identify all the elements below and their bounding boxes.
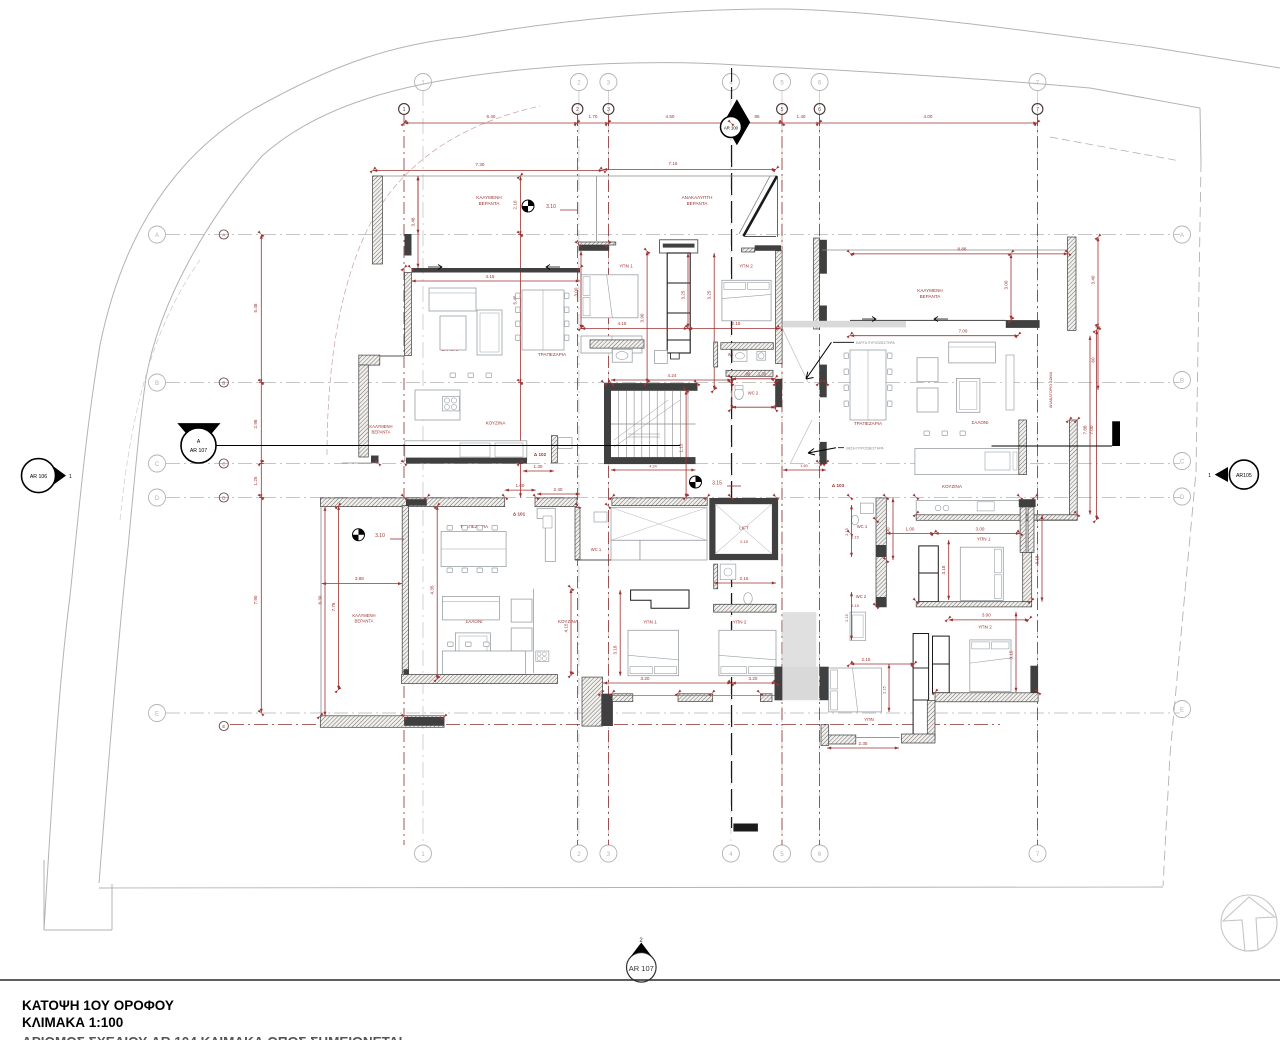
svg-text:ΘΕΣΗ ΠΥΡΟΣΒΕΣΤΗΡΑ: ΘΕΣΗ ΠΥΡΟΣΒΕΣΤΗΡΑ	[846, 446, 884, 450]
svg-text:WC 2: WC 2	[856, 594, 867, 599]
svg-text:ΚΟΥΖΙΝΑ: ΚΟΥΖΙΝΑ	[942, 484, 963, 489]
svg-text:3.15: 3.15	[1009, 650, 1014, 659]
svg-text:2: 2	[576, 107, 579, 113]
svg-text:3.10: 3.10	[546, 204, 556, 210]
svg-text:A: A	[155, 233, 159, 239]
svg-text:2.15: 2.15	[883, 686, 887, 693]
svg-text:2.15: 2.15	[845, 614, 849, 621]
svg-text:8.30: 8.30	[318, 595, 323, 604]
svg-text:4.50: 4.50	[666, 114, 675, 119]
svg-text:ΚΑΛΥΜΕΝΗ: ΚΑΛΥΜΕΝΗ	[476, 195, 501, 200]
svg-text:7.90: 7.90	[253, 595, 258, 604]
svg-text:3.00: 3.00	[976, 526, 985, 531]
svg-text:4.35: 4.35	[430, 585, 435, 594]
svg-text:2.15: 2.15	[732, 321, 741, 326]
svg-text:90: 90	[886, 527, 891, 533]
svg-text:ΥΠΝ 1: ΥΠΝ 1	[643, 620, 657, 625]
svg-text:2.15: 2.15	[862, 657, 871, 662]
svg-text:ΚΑΤΟΨΗ 1ΟΥ ΟΡΟΦΟΥ: ΚΑΤΟΨΗ 1ΟΥ ΟΡΟΦΟΥ	[22, 998, 174, 1013]
svg-text:AR 107: AR 107	[629, 964, 654, 973]
svg-text:6.40: 6.40	[487, 114, 496, 119]
svg-text:3.18: 3.18	[941, 565, 946, 574]
svg-text:4.24: 4.24	[668, 373, 677, 378]
svg-text:3.10: 3.10	[375, 533, 385, 539]
svg-text:1.00: 1.00	[516, 483, 525, 488]
svg-text:1.25: 1.25	[253, 476, 258, 485]
svg-text:2.15: 2.15	[740, 576, 749, 581]
svg-text:ΚΑΛΥΜΕΝΗ: ΚΑΛΥΜΕΝΗ	[352, 613, 375, 618]
svg-text:B: B	[155, 381, 159, 387]
svg-text:ΚΟΥΖΙΝΑ: ΚΟΥΖΙΝΑ	[486, 421, 507, 426]
svg-text:Δ 103: Δ 103	[832, 483, 845, 488]
svg-text:1.70: 1.70	[589, 114, 598, 119]
svg-text:8.88: 8.88	[958, 247, 967, 252]
svg-text:ΒΕΡΑΝΤΑ: ΒΕΡΑΝΤΑ	[479, 201, 501, 206]
svg-text:ΚΛΙΜΑΚΑ 1:100: ΚΛΙΜΑΚΑ 1:100	[22, 1015, 123, 1030]
svg-text:ΥΠΝ 2: ΥΠΝ 2	[978, 625, 992, 630]
svg-text:4.15: 4.15	[486, 274, 495, 279]
svg-text:Δ 102: Δ 102	[534, 452, 547, 457]
svg-text:2.35: 2.35	[859, 741, 868, 746]
svg-text:1: 1	[403, 107, 406, 113]
svg-text:7.00: 7.00	[959, 329, 968, 334]
svg-text:ΥΠΝ 2: ΥΠΝ 2	[739, 264, 753, 269]
svg-text:3.00: 3.00	[982, 613, 991, 618]
svg-text:AR105: AR105	[1236, 473, 1252, 479]
svg-text:3.40: 3.40	[1091, 275, 1096, 284]
svg-text:2.10: 2.10	[513, 200, 518, 209]
svg-text:4.24: 4.24	[649, 465, 656, 469]
svg-text:4.15: 4.15	[618, 321, 627, 326]
svg-text:3.00: 3.00	[1004, 280, 1009, 289]
svg-text:3.48: 3.48	[411, 217, 416, 226]
svg-text:1.60: 1.60	[800, 464, 807, 468]
svg-text:B: B	[1180, 379, 1184, 385]
svg-text:E: E	[1180, 708, 1184, 714]
svg-text:ΤΡΑΠΕΖΑΡΙΑ: ΤΡΑΠΕΖΑΡΙΑ	[854, 421, 883, 426]
svg-text:ΚΑΡΤΑ ΠΥΡΟΣΒΕΣΤΗΡΑ: ΚΑΡΤΑ ΠΥΡΟΣΒΕΣΤΗΡΑ	[856, 341, 895, 345]
svg-text:ΥΠΝ 1: ΥΠΝ 1	[977, 537, 991, 542]
svg-text:AR 106: AR 106	[30, 474, 47, 480]
svg-text:2.15: 2.15	[851, 603, 860, 608]
svg-text:ΚΟΥΖΙΝΑ: ΚΟΥΖΙΝΑ	[558, 619, 579, 624]
svg-text:A: A	[1180, 233, 1184, 239]
svg-text:1.30: 1.30	[758, 372, 767, 377]
svg-text:D: D	[1180, 495, 1185, 501]
svg-text:ΑΡΙΘΜΟΣ ΣΧΕΔΙΟΥ AR 104 ΚΛΙΜΑΚΑ: ΑΡΙΘΜΟΣ ΣΧΕΔΙΟΥ AR 104 ΚΛΙΜΑΚΑ ΟΠΩΣ ΣΗΜΕ…	[22, 1035, 402, 1041]
svg-text:90: 90	[746, 372, 751, 377]
svg-text:2.98: 2.98	[253, 419, 258, 428]
svg-text:E: E	[222, 724, 225, 729]
svg-text:1.15: 1.15	[679, 443, 684, 452]
svg-text:2.40: 2.40	[554, 487, 563, 492]
svg-text:3.18: 3.18	[613, 645, 618, 654]
svg-text:1: 1	[1208, 473, 1211, 479]
svg-text:4.15: 4.15	[564, 623, 569, 632]
svg-text:C: C	[155, 462, 160, 468]
svg-text:ΤΡΑΠΕΖΑΡΙΑ: ΤΡΑΠΕΖΑΡΙΑ	[538, 352, 567, 357]
svg-text:7.30: 7.30	[476, 162, 485, 167]
svg-text:2.15: 2.15	[740, 539, 749, 544]
svg-text:7: 7	[1036, 107, 1039, 113]
svg-text:1.40: 1.40	[797, 114, 806, 119]
svg-text:ΒΕΡΑΝΤΑ: ΒΕΡΑΝΤΑ	[920, 294, 942, 299]
svg-text:1.30: 1.30	[534, 464, 543, 469]
svg-text:3.00: 3.00	[574, 287, 579, 296]
svg-text:3.15: 3.15	[712, 481, 722, 487]
svg-text:E: E	[155, 712, 159, 718]
svg-text:ΥΠΝ 2: ΥΠΝ 2	[733, 620, 747, 625]
svg-text:3: 3	[607, 107, 610, 113]
svg-text:AR 107: AR 107	[190, 448, 207, 454]
svg-text:B: B	[222, 380, 225, 385]
svg-text:D: D	[155, 496, 160, 502]
svg-text:ΚΑΛΥΜΕΝΗ: ΚΑΛΥΜΕΝΗ	[369, 424, 392, 429]
svg-text:3.18: 3.18	[1035, 555, 1040, 564]
svg-text:ΒΕΡΑΝΤΑ: ΒΕΡΑΝΤΑ	[372, 430, 391, 435]
svg-text:3.20: 3.20	[749, 676, 758, 681]
svg-text:3.20: 3.20	[641, 676, 650, 681]
svg-text:7.88: 7.88	[1083, 425, 1088, 434]
svg-text:AR 100: AR 100	[724, 126, 739, 131]
svg-text:3.90: 3.90	[640, 313, 645, 322]
svg-text:WC 1: WC 1	[857, 524, 868, 529]
svg-text:LIFT: LIFT	[739, 526, 749, 531]
svg-text:WC 1: WC 1	[591, 547, 602, 552]
svg-text:ΚΑΛΥΜΕΝΗ: ΚΑΛΥΜΕΝΗ	[917, 288, 942, 293]
svg-text:6: 6	[818, 107, 821, 113]
svg-text:ΑΝΑΒΑΤΟΡΙΟ ΔΩΜΑ: ΑΝΑΒΑΤΟΡΙΟ ΔΩΜΑ	[1049, 371, 1053, 408]
svg-text:ΣΑΛΟΝΙ: ΣΑΛΟΝΙ	[971, 420, 988, 425]
svg-text:ΒΕΡΑΝΤΑ: ΒΕΡΑΝΤΑ	[687, 201, 709, 206]
svg-text:60: 60	[1091, 357, 1096, 363]
svg-text:WC 2: WC 2	[748, 391, 759, 396]
svg-text:1.00: 1.00	[906, 526, 915, 531]
svg-text:D: D	[222, 495, 225, 500]
svg-text:3.88: 3.88	[355, 576, 364, 581]
svg-text:A: A	[222, 232, 225, 237]
svg-text:ΑΝΑΚΑΛΥΠΤΗ: ΑΝΑΚΑΛΥΠΤΗ	[682, 195, 713, 200]
svg-text:7.76: 7.76	[331, 602, 336, 611]
svg-text:3.25: 3.25	[681, 290, 686, 299]
svg-text:ΥΠΝ: ΥΠΝ	[864, 717, 874, 722]
svg-text:4.00: 4.00	[924, 114, 933, 119]
svg-text:5: 5	[781, 107, 784, 113]
svg-text:7.16: 7.16	[669, 161, 678, 166]
svg-text:ΥΠΝ 1: ΥΠΝ 1	[619, 264, 633, 269]
svg-text:C: C	[222, 461, 225, 466]
svg-text:ΒΕΡΑΝΤΑ: ΒΕΡΑΝΤΑ	[355, 619, 374, 624]
svg-text:85: 85	[754, 114, 760, 119]
svg-text:C: C	[1180, 460, 1185, 466]
svg-text:Δ 101: Δ 101	[513, 512, 526, 517]
svg-text:1: 1	[69, 474, 72, 480]
svg-text:3.25: 3.25	[707, 290, 712, 299]
svg-text:5.48: 5.48	[253, 303, 258, 312]
